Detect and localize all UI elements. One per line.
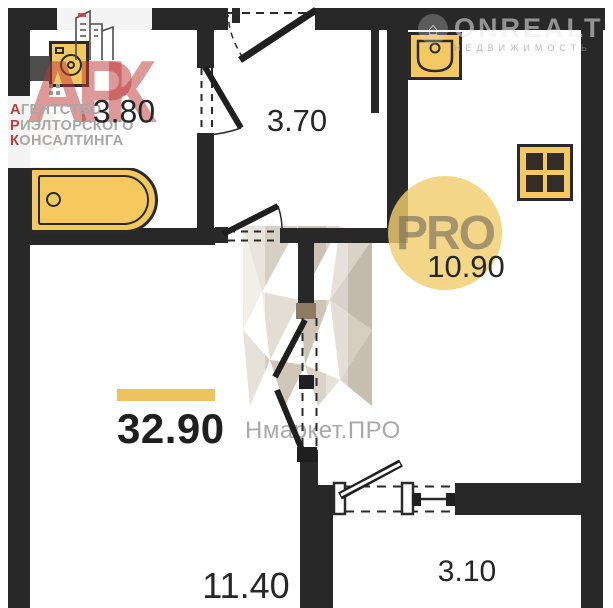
agency-name-line: КОНСАЛТИНГА	[10, 134, 134, 150]
nmarket-watermark: Нмаркет.ПРО	[245, 417, 401, 445]
wall-segment	[581, 8, 603, 608]
hallway-area-label: 3.70	[267, 103, 327, 139]
wall-segment	[298, 243, 314, 305]
house-icon: ⌂	[418, 14, 448, 44]
wall-segment	[455, 483, 581, 515]
wall-segment	[296, 303, 316, 319]
wall-segment	[232, 8, 240, 23]
wall-segment	[300, 485, 333, 608]
total-area-label: 32.90	[117, 405, 225, 453]
onrealt-subtitle: НЕДВИЖИМОСТЬ	[454, 43, 604, 53]
wall-segment	[197, 30, 214, 68]
stove-icon	[517, 144, 573, 201]
total-area-block: 32.90	[117, 389, 225, 453]
wall-segment	[197, 133, 214, 230]
floor-plan: А Р К АГЕНТСТВО РИЭЛТОРСКОГО КОНСАЛТИНГА…	[0, 0, 613, 608]
bathroom-area-label: 3.80	[93, 94, 155, 131]
door-hinge-block	[215, 227, 228, 243]
balcony-area-label: 3.10	[438, 555, 496, 589]
total-area-highlight-bar	[117, 389, 215, 401]
room-area-label: 11.40	[202, 565, 289, 607]
wall-segment	[300, 450, 318, 485]
onrealt-title: ONREALT	[454, 14, 604, 42]
kitchen-area-label: 10.90	[427, 249, 505, 285]
bathtub-drain	[46, 192, 61, 207]
onrealt-watermark: ⌂ ONREALT НЕДВИЖИМОСТЬ	[418, 14, 604, 53]
wall-segment	[371, 28, 379, 113]
bathtub-icon	[29, 167, 158, 233]
